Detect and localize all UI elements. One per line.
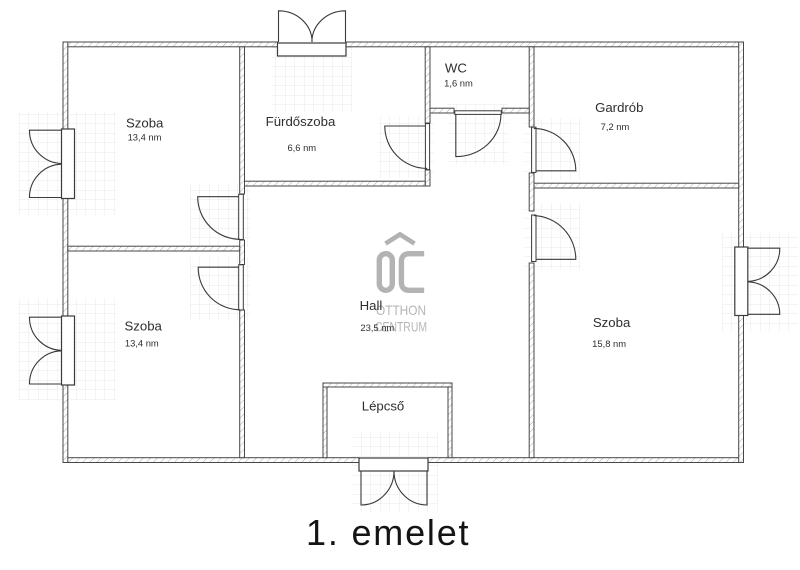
svg-text:WC: WC	[445, 60, 467, 75]
svg-text:7,2 nm: 7,2 nm	[601, 121, 630, 132]
svg-text:Szoba: Szoba	[126, 115, 164, 130]
svg-text:Fürdőszoba: Fürdőszoba	[266, 114, 336, 129]
svg-text:1. emelet: 1. emelet	[306, 512, 470, 553]
svg-text:Szoba: Szoba	[593, 315, 631, 330]
svg-text:13,4 nm: 13,4 nm	[128, 132, 162, 143]
svg-text:Gardrób: Gardrób	[595, 100, 643, 115]
svg-text:Hall: Hall	[360, 298, 383, 313]
svg-text:13,4 nm: 13,4 nm	[125, 338, 159, 349]
svg-text:6,6 nm: 6,6 nm	[287, 142, 316, 153]
svg-text:OTTHON: OTTHON	[376, 302, 426, 318]
svg-text:Szoba: Szoba	[124, 319, 162, 334]
svg-text:23,5 nm: 23,5 nm	[360, 322, 394, 333]
svg-text:15,8 nm: 15,8 nm	[592, 338, 626, 349]
svg-text:1,6 nm: 1,6 nm	[444, 78, 473, 89]
svg-text:Lépcső: Lépcső	[362, 399, 405, 414]
